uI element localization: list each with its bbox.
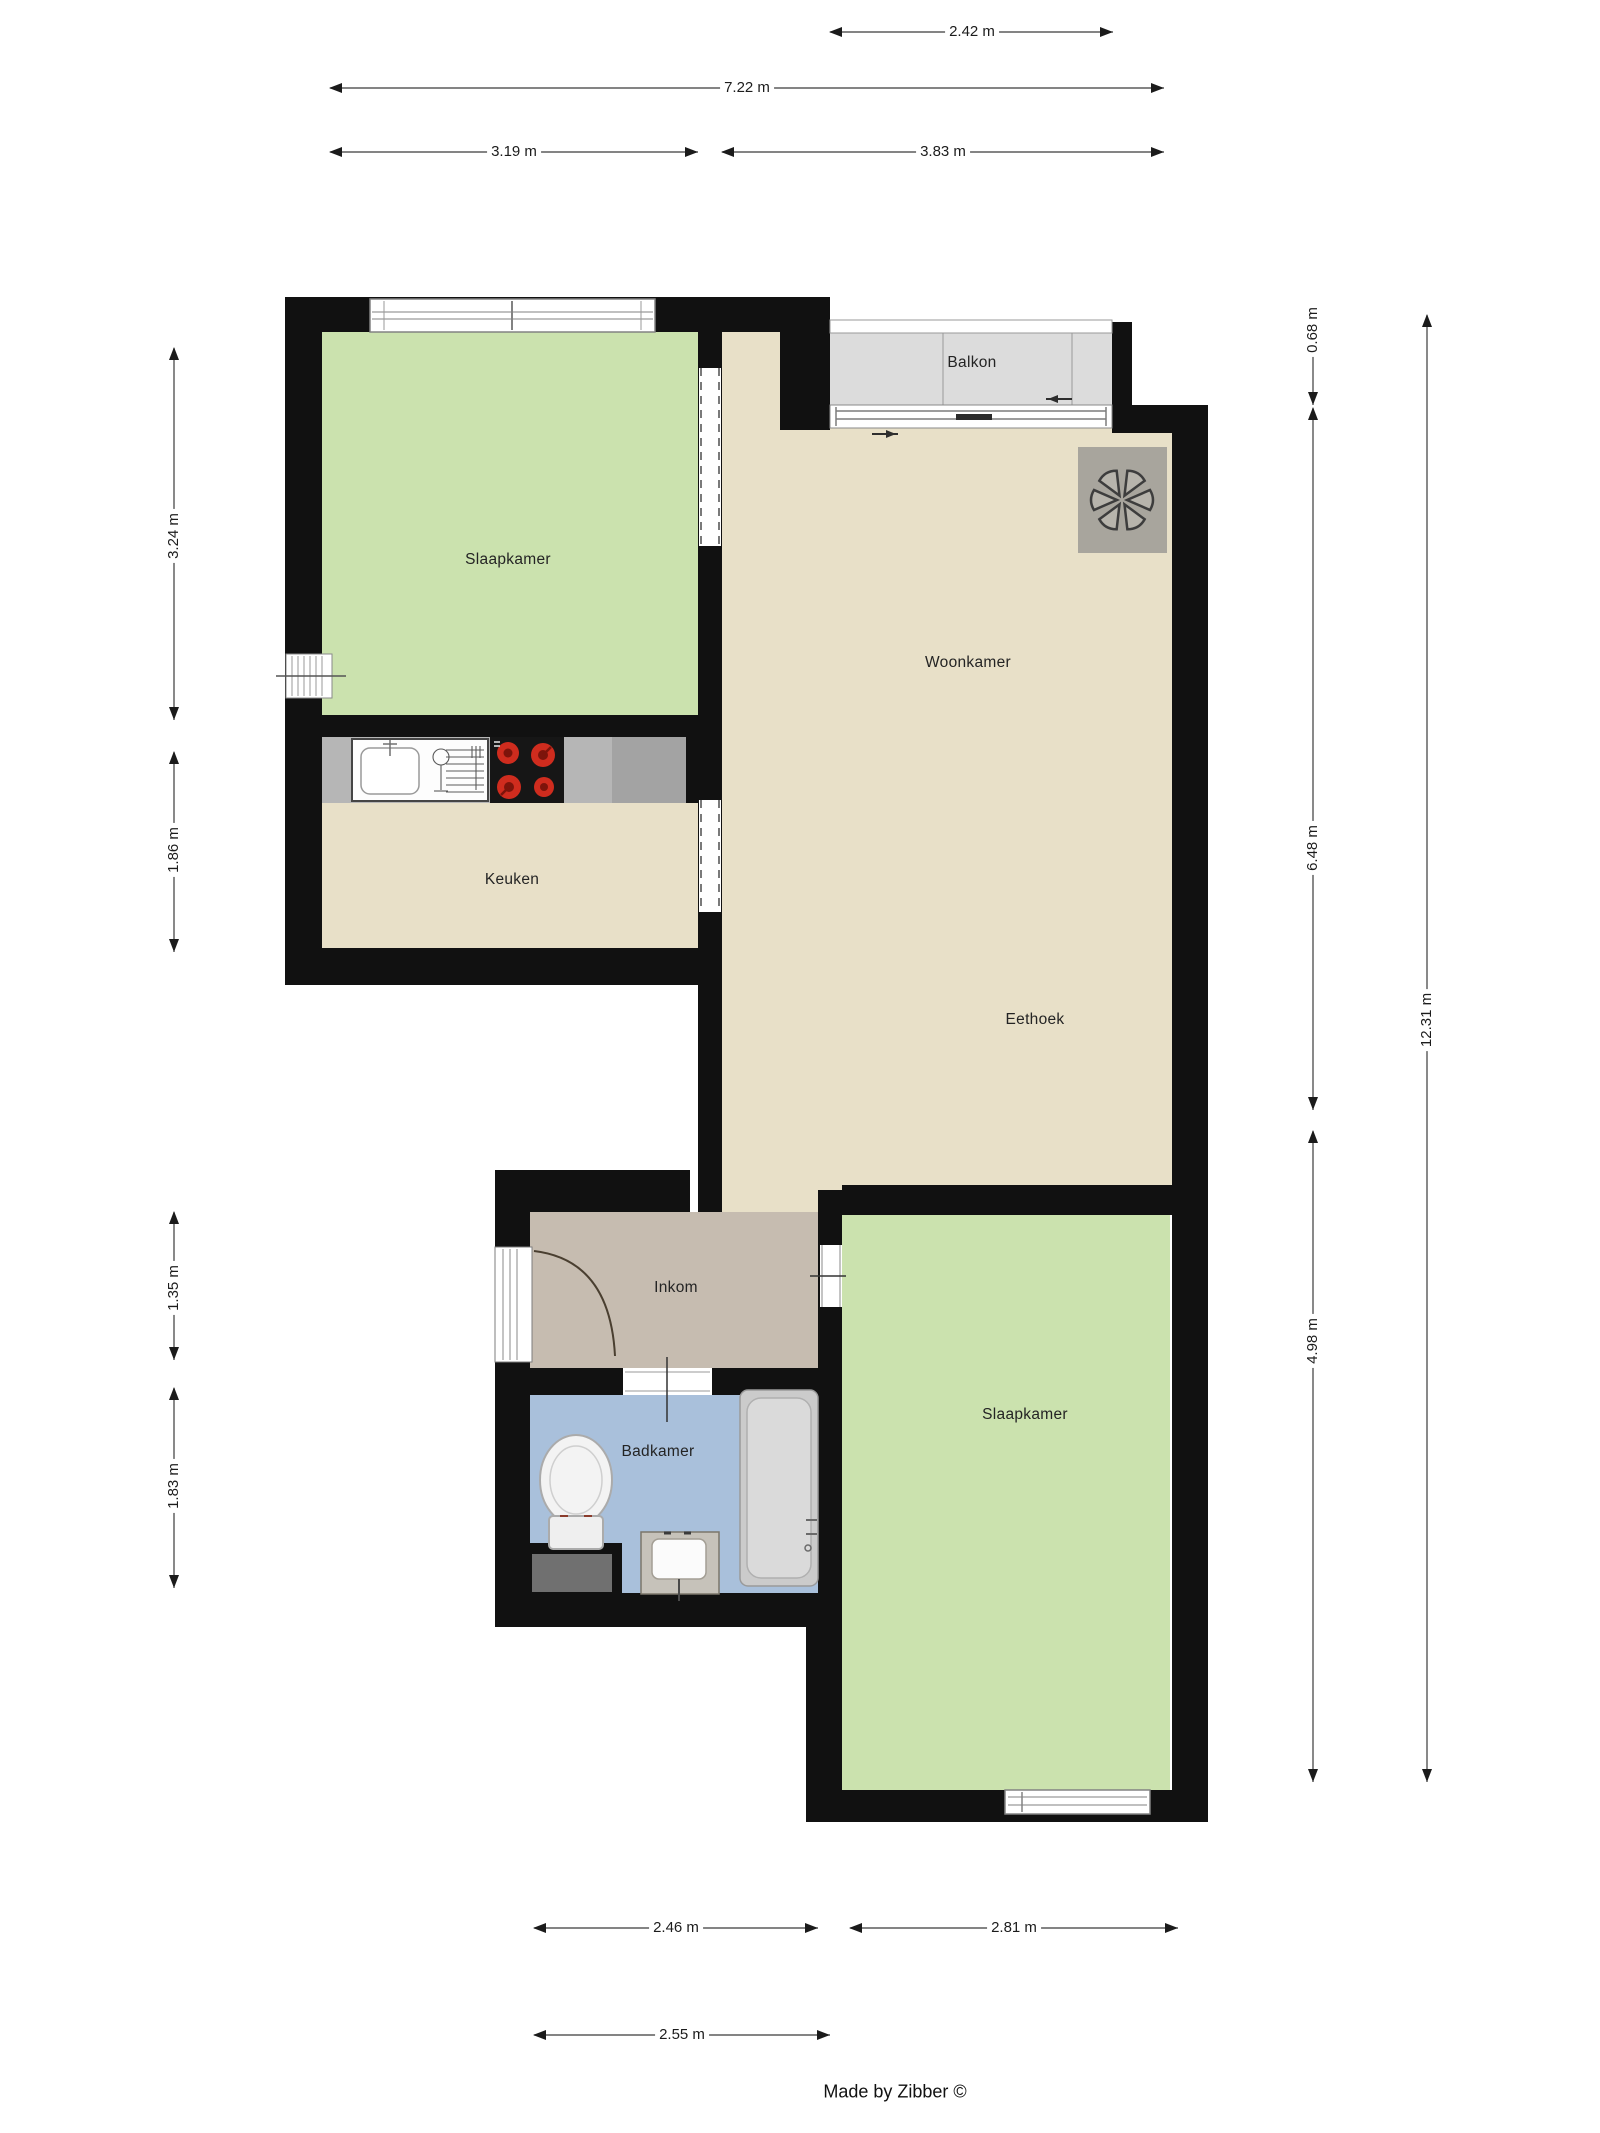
credit-text: Made by Zibber © xyxy=(823,2082,966,2103)
dim-label-right-width: 3.83 m xyxy=(916,144,970,161)
dim-label-bedroom1-height: 3.24 m xyxy=(166,509,183,563)
exterior-patch xyxy=(1132,318,1172,405)
dim-label-balcony-depth: 0.68 m xyxy=(1305,303,1322,357)
dim-label-bathroom-width: 2.46 m xyxy=(649,1920,703,1937)
dim-label-bedroom2-height: 4.98 m xyxy=(1305,1314,1322,1368)
window-bedroom2-icon xyxy=(1005,1790,1150,1814)
room-label-woonkamer: Woonkamer xyxy=(925,654,1011,672)
floorplan-canvas: Slaapkamer Woonkamer Eethoek Keuken Balk… xyxy=(0,0,1600,2133)
room-label-badkamer: Badkamer xyxy=(621,1443,694,1461)
room-slaapkamer-2-floor xyxy=(842,1215,1170,1790)
bathtub-icon xyxy=(740,1390,818,1586)
wall-bedroom2-left-lower xyxy=(806,1593,842,1822)
dim-label-entrance-height: 1.35 m xyxy=(166,1261,183,1315)
wall-left xyxy=(285,297,322,985)
dim-label-balcony-width: 2.42 m xyxy=(945,24,999,41)
wall-balcony-right-pier xyxy=(1112,322,1132,405)
stove-icon xyxy=(490,737,564,803)
opening-kitchen-living xyxy=(699,800,721,912)
washing-machine-icon xyxy=(532,1554,612,1592)
room-label-keuken: Keuken xyxy=(485,871,539,889)
dim-label-living-height: 6.48 m xyxy=(1305,821,1322,875)
extractor-fan-icon xyxy=(1078,447,1167,553)
wall-bedroom1-kitchen xyxy=(285,715,698,737)
room-label-slaapkamer-2: Slaapkamer xyxy=(982,1406,1068,1424)
dim-label-total-width: 7.22 m xyxy=(720,80,774,97)
sliding-door-icon xyxy=(830,405,1112,428)
room-slaapkamer-1-floor xyxy=(322,332,698,715)
wall-kitchen-bottom xyxy=(285,948,698,985)
window-bedroom1-icon xyxy=(370,299,655,332)
wall-right xyxy=(1172,405,1208,1822)
dim-label-bedroom2-width: 2.81 m xyxy=(987,1920,1041,1937)
room-label-balkon: Balkon xyxy=(947,354,996,372)
dim-label-entrance-width: 2.55 m xyxy=(655,2027,709,2044)
washbasin-icon xyxy=(641,1532,719,1601)
room-label-inkom: Inkom xyxy=(654,1279,698,1297)
dim-label-bathroom-height: 1.83 m xyxy=(166,1459,183,1513)
dim-label-kitchen-height: 1.86 m xyxy=(166,823,183,877)
room-label-eethoek: Eethoek xyxy=(1006,1011,1065,1029)
opening-bedroom1-living xyxy=(699,368,721,546)
wall-living-bedroom2 xyxy=(842,1185,1172,1215)
toilet-icon xyxy=(540,1435,612,1549)
floorplan-drawing xyxy=(0,0,1600,2133)
dim-label-left-width: 3.19 m xyxy=(487,144,541,161)
wall-counter-sliver xyxy=(686,737,698,803)
room-label-slaapkamer-1: Slaapkamer xyxy=(465,551,551,569)
dim-label-total-height: 12.31 m xyxy=(1419,989,1436,1051)
wall-balcony-left-pier xyxy=(780,297,830,430)
wall-bathroom-bottom xyxy=(495,1593,818,1627)
